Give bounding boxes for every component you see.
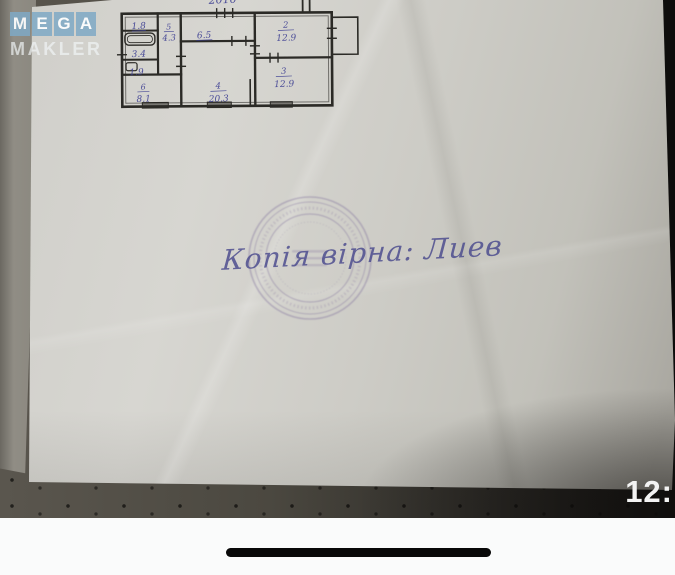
room-label: 3.4 [131,50,146,61]
watermark-letter: M [10,12,30,36]
screen: 1.8 3.4 1.9 5 4.3 6 8.1 6.5 4 20.3 2 12.… [0,0,675,575]
watermark-mega: MEGA [10,12,103,36]
watermark-letter: E [32,12,52,36]
watermark-logo: MEGA MAKLER [10,12,103,60]
photo-viewport[interactable]: 1.8 3.4 1.9 5 4.3 6 8.1 6.5 4 20.3 2 12.… [0,0,675,518]
room-label: 5 [166,22,171,31]
watermark-makler: MAKLER [10,39,103,60]
room-label: 1.9 [129,68,144,79]
watermark-letter: A [76,12,96,36]
home-bar-area [0,518,675,575]
room-label: 6 [140,83,145,92]
clock-text: 12: [625,476,673,507]
room-label: 12.9 [276,33,297,44]
room-label: 4.3 [161,33,176,44]
bathtub-icon [125,33,155,45]
date-note-cutoff: 2010 [207,0,237,7]
room-label: 2 [282,21,289,31]
room-label: 4 [214,81,221,91]
room-label: 3 [281,67,287,77]
room-label: 20.3 [208,94,230,105]
home-indicator[interactable] [226,548,491,557]
floor-plan-drawing: 1.8 3.4 1.9 5 4.3 6 8.1 6.5 4 20.3 2 12.… [100,0,363,119]
room-label: 12.9 [274,79,295,90]
watermark-letter: G [54,12,74,36]
floorplan-walls [122,0,359,107]
room-label: 8.1 [136,94,151,105]
